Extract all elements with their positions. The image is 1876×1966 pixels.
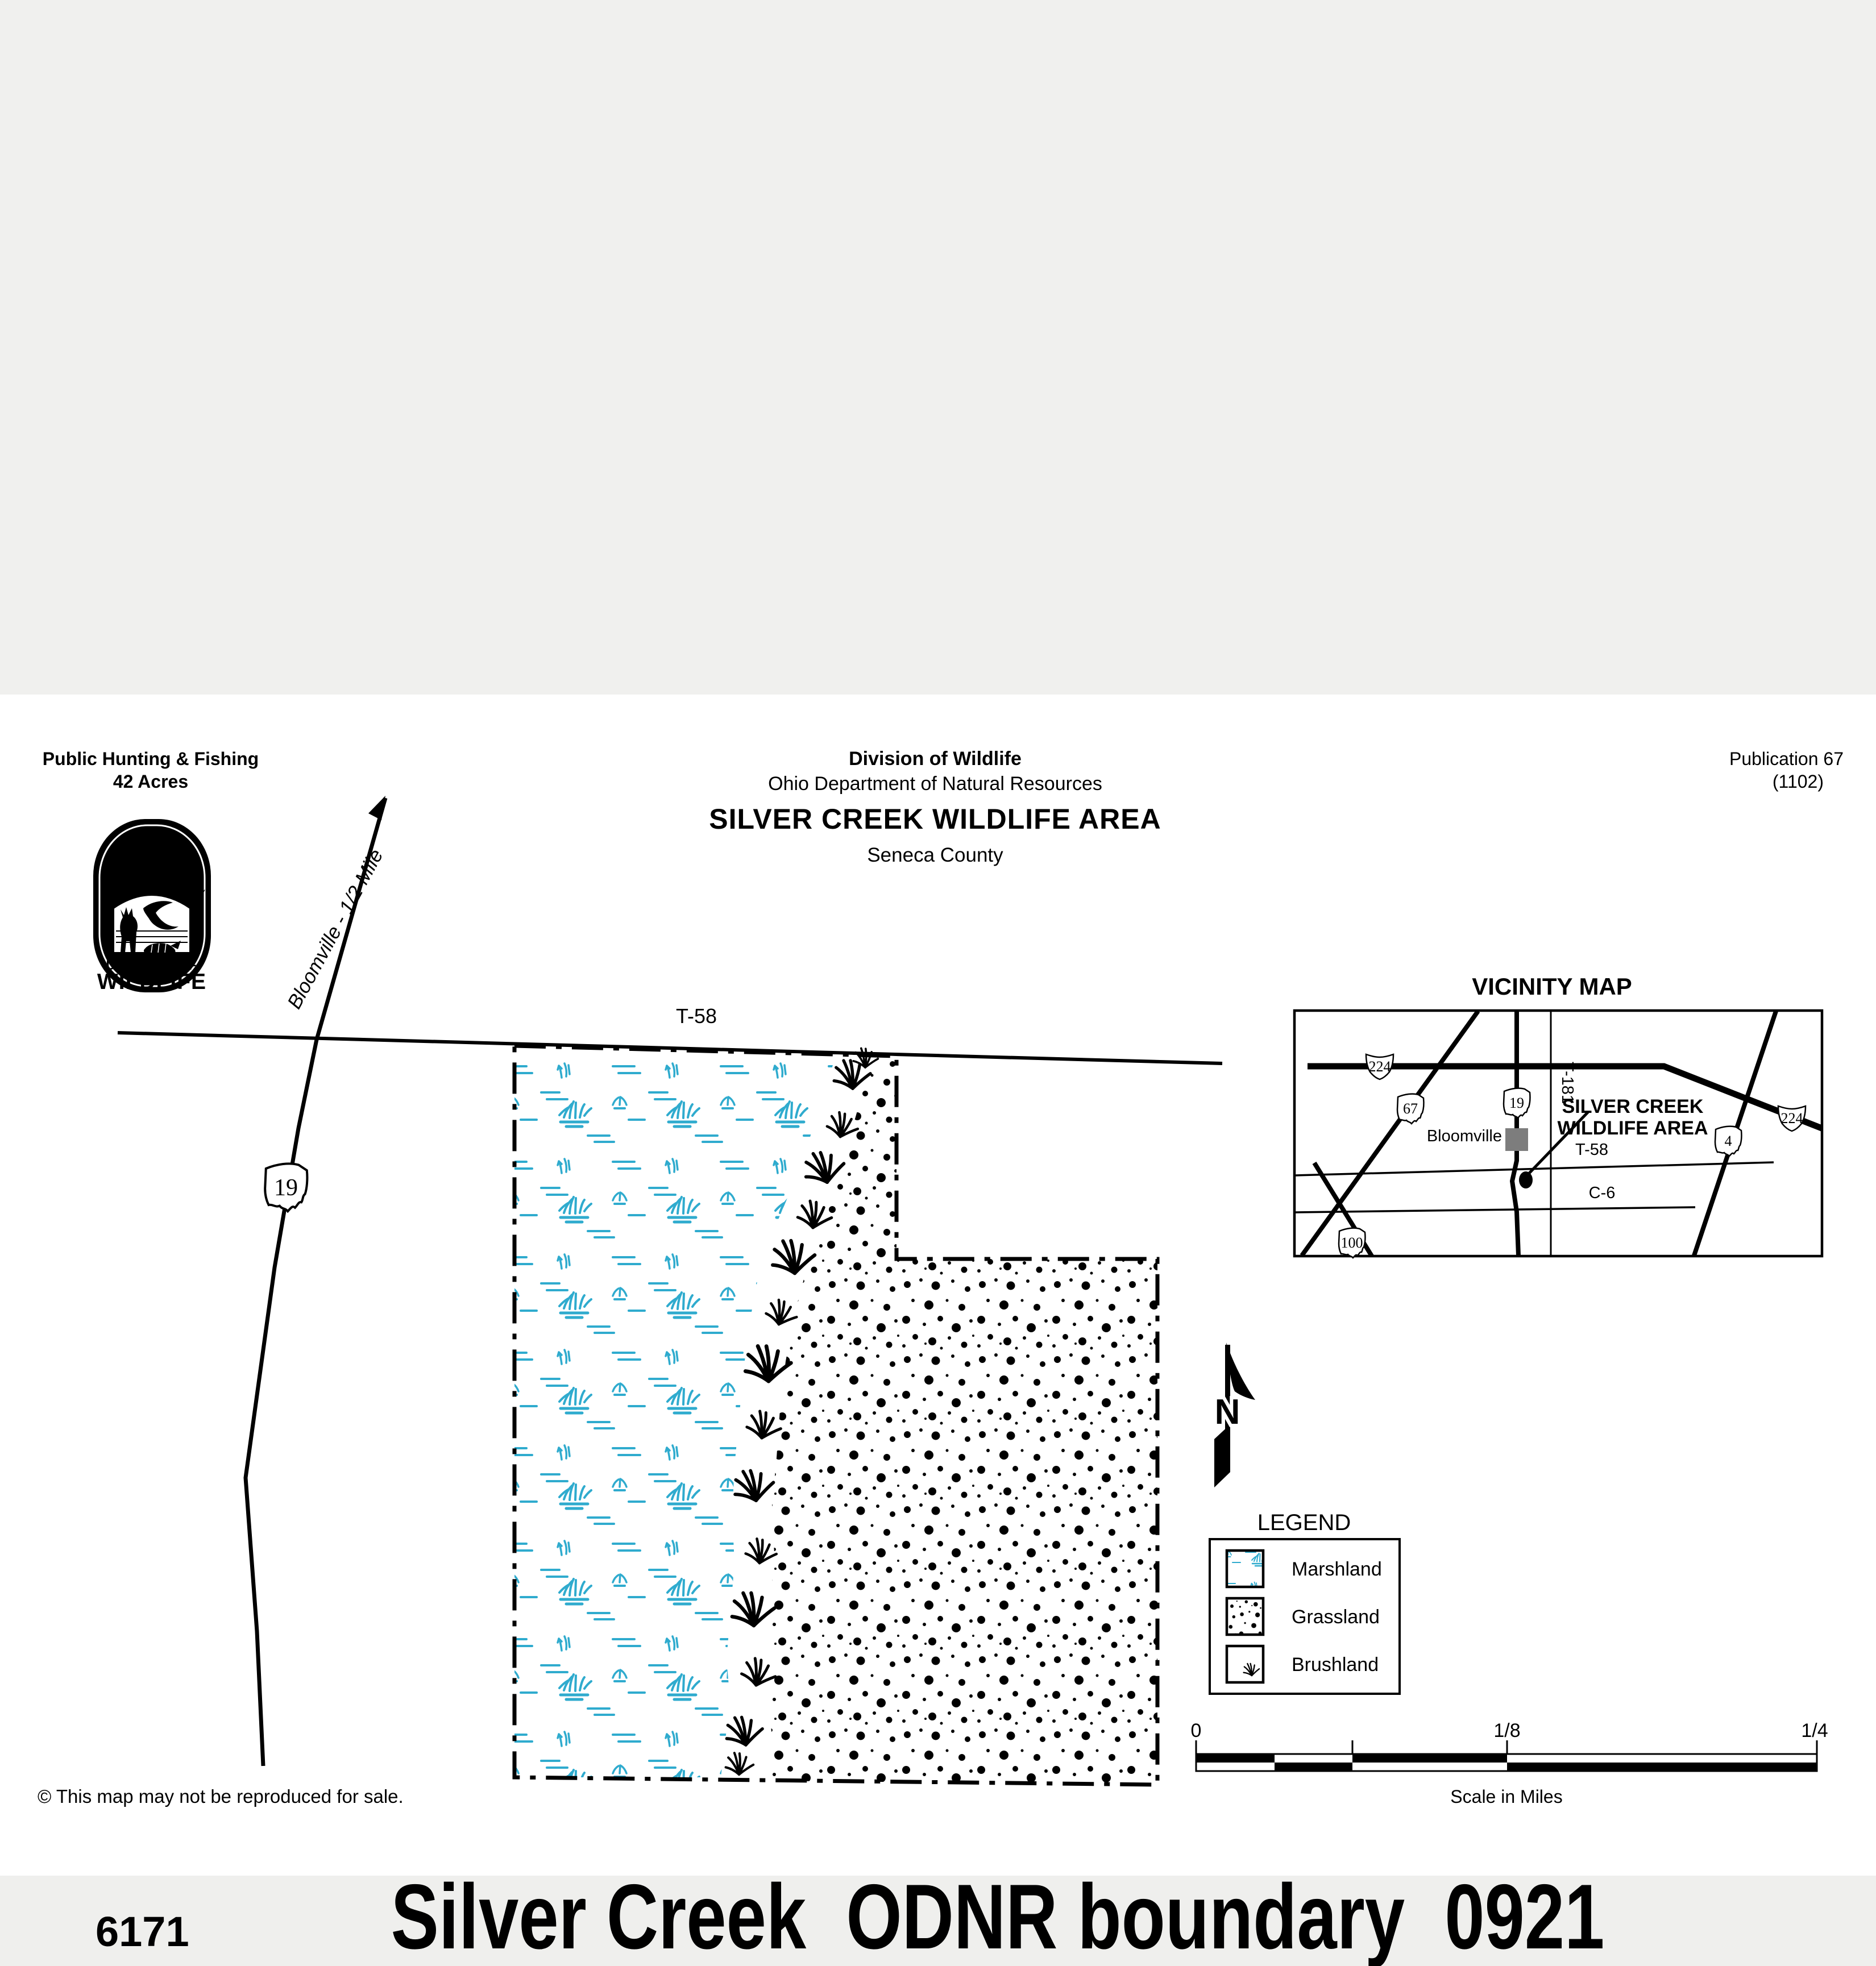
vicinity-area-line1: SILVER CREEK bbox=[1562, 1096, 1704, 1117]
marshland-swatch bbox=[1227, 1551, 1263, 1587]
odnr-line: Ohio Department of Natural Resources bbox=[768, 773, 1102, 795]
publication-line: Publication 67 bbox=[1729, 749, 1844, 769]
vicinity-map: VICINITY MAP Bloomville SILVER CREEK WIL… bbox=[1294, 973, 1823, 1258]
logo-wildlife: WILDLIFE bbox=[97, 970, 206, 994]
brushland-label: Brushland bbox=[1292, 1654, 1379, 1676]
bloomville-label: Bloomville bbox=[1427, 1127, 1502, 1145]
top-gray-band bbox=[0, 0, 1876, 695]
public-hunting-line: Public Hunting & Fishing bbox=[43, 749, 259, 769]
map-sheet: Public Hunting & Fishing 42 Acres Divisi… bbox=[0, 0, 1876, 1966]
logo-state: OHIO bbox=[119, 843, 185, 864]
t181-label: T-181 bbox=[1558, 1062, 1576, 1104]
acres-line: 42 Acres bbox=[113, 771, 188, 792]
area-location-dot bbox=[1519, 1171, 1533, 1188]
t58-road-label: T-58 bbox=[676, 1004, 717, 1028]
us224-right-number: 224 bbox=[1781, 1110, 1803, 1127]
bloomville-town-square bbox=[1505, 1128, 1528, 1151]
legend-title: LEGEND bbox=[1257, 1510, 1351, 1535]
scale-quarter: 1/4 bbox=[1801, 1720, 1828, 1741]
page-title: SILVER CREEK WILDLIFE AREA bbox=[709, 803, 1161, 835]
sr67-number: 67 bbox=[1403, 1100, 1418, 1117]
sr4-number: 4 bbox=[1725, 1133, 1732, 1149]
sr100-number: 100 bbox=[1341, 1235, 1363, 1251]
c6-label: C-6 bbox=[1589, 1184, 1616, 1202]
route19-shield-number: 19 bbox=[274, 1175, 298, 1201]
county-line: Seneca County bbox=[867, 844, 1003, 866]
scale-zero: 0 bbox=[1191, 1720, 1202, 1741]
footer-title: Silver Creek ODNR boundary 0921 bbox=[391, 1865, 1605, 1966]
us224-left-number: 224 bbox=[1369, 1058, 1391, 1075]
sr19-number: 19 bbox=[1509, 1095, 1524, 1111]
marshland-label: Marshland bbox=[1292, 1558, 1382, 1580]
vicinity-title: VICINITY MAP bbox=[1472, 973, 1632, 1000]
copyright-note: © This map may not be reproduced for sal… bbox=[38, 1786, 404, 1807]
footer-code: 6171 bbox=[96, 1908, 189, 1955]
brushland-swatch bbox=[1227, 1646, 1263, 1682]
division-line: Division of Wildlife bbox=[849, 748, 1022, 770]
publication-number: (1102) bbox=[1773, 771, 1824, 792]
north-label: N bbox=[1215, 1393, 1240, 1432]
scale-segments bbox=[1196, 1754, 1817, 1771]
scale-eighth: 1/8 bbox=[1493, 1720, 1520, 1741]
t58-label-vicinity: T-58 bbox=[1575, 1141, 1608, 1159]
grassland-label: Grassland bbox=[1292, 1606, 1380, 1628]
scale-caption: Scale in Miles bbox=[1450, 1786, 1562, 1807]
grassland-swatch bbox=[1227, 1598, 1263, 1635]
